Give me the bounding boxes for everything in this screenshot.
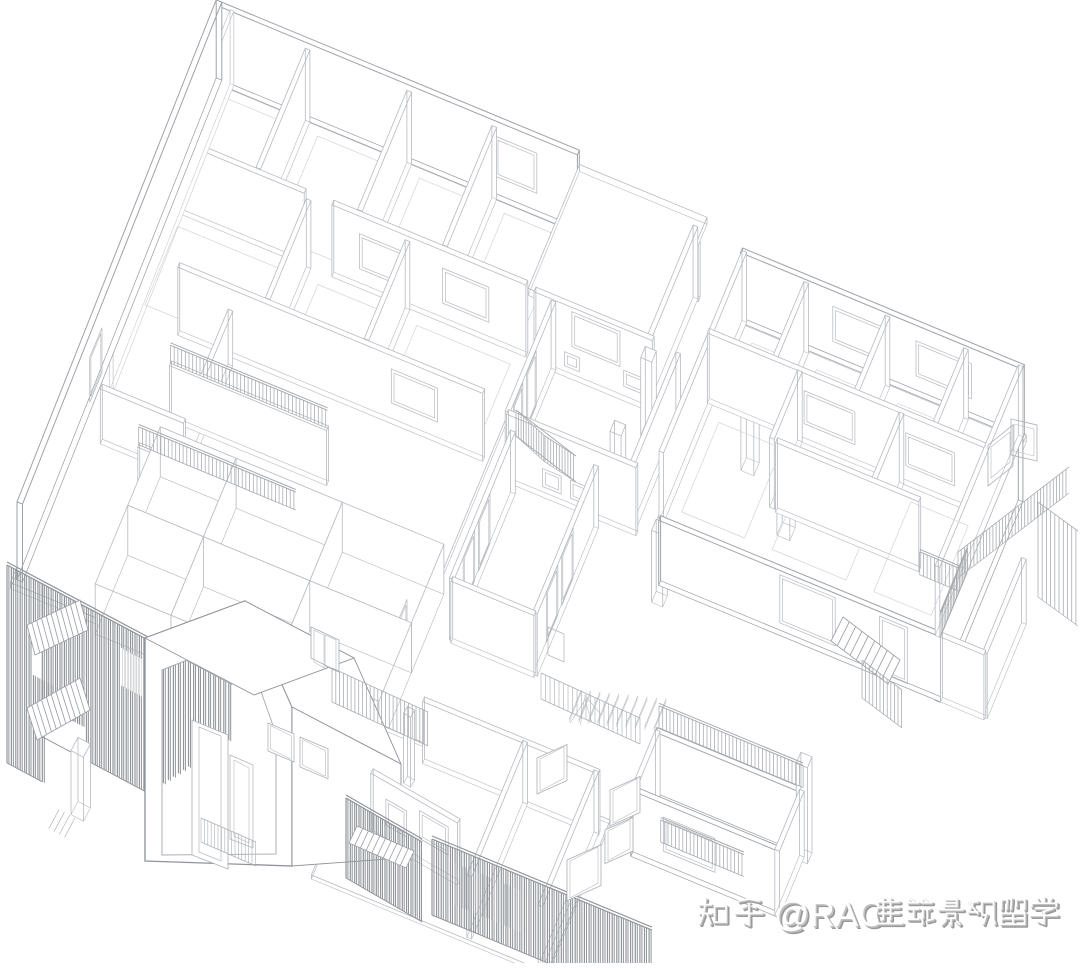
svg-text:@RAC: @RAC (774, 895, 883, 934)
